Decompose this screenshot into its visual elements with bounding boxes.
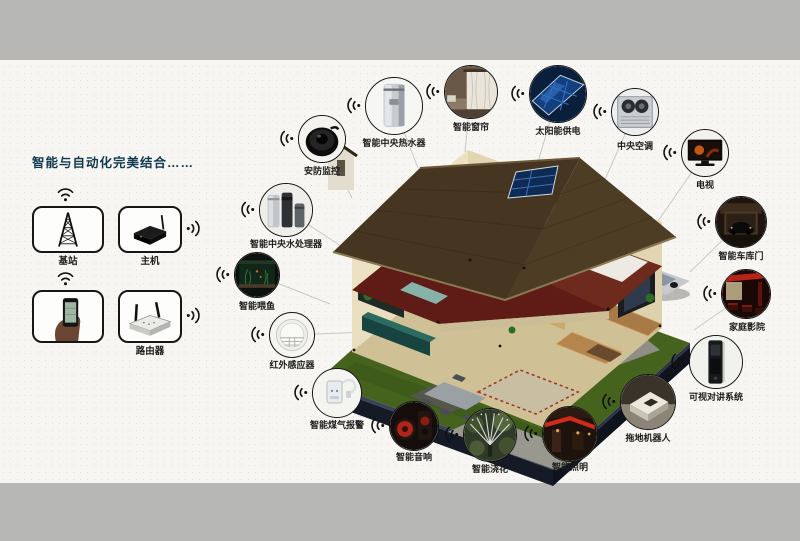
wifi-signal-icon: [703, 284, 718, 303]
device-label: 安防监控: [252, 166, 392, 176]
wifi-signal-icon: [294, 383, 309, 402]
device-label: 智能煤气报警: [267, 420, 407, 430]
page-title: 智能与自动化完美结合……: [32, 152, 194, 171]
home-theater-icon: [721, 269, 771, 319]
wifi-signal-icon: [56, 272, 75, 287]
wifi-signal-icon: [251, 325, 266, 344]
wifi-signal-icon: [663, 143, 678, 162]
intercom-icon: [689, 335, 743, 389]
device-label: 红外感应器: [222, 360, 362, 370]
device-label: 智能音响: [344, 452, 484, 462]
smart-home-infographic: 智能与自动化完美结合…… 基站 主机: [0, 0, 800, 541]
smart-lighting-icon: [542, 406, 598, 462]
device-label: 智能浇花: [420, 464, 560, 474]
wifi-signal-icon: [511, 84, 526, 103]
wifi-signal-icon: [524, 424, 539, 443]
wifi-signal-icon: [280, 129, 295, 148]
device-label: 智能喂鱼: [187, 301, 327, 311]
device-label: 智能中央热水器: [324, 138, 464, 148]
wifi-signal-icon: [426, 82, 441, 101]
device-label: 家庭影院: [677, 322, 800, 332]
wifi-signal-icon: [56, 188, 75, 203]
infrared-sensor-icon: [269, 312, 315, 358]
host-device-icon: [118, 206, 182, 253]
wifi-signal-icon: [602, 392, 617, 411]
device-label: 智能中央水处理器: [216, 239, 356, 249]
device-label: 拖地机器人: [578, 433, 718, 443]
curtains-icon: [444, 65, 498, 119]
device-label: 智能车库门: [671, 251, 800, 261]
gas-alarm-icon: [312, 368, 362, 418]
device-label: 太阳能供电: [488, 126, 628, 136]
wifi-signal-icon: [241, 200, 256, 219]
mopping-robot-icon: [620, 374, 676, 430]
aquarium-icon: [234, 252, 280, 298]
hub-label: 主机: [80, 257, 220, 267]
wifi-signal-icon: [216, 265, 231, 284]
water-processor-icon: [259, 183, 313, 237]
wifi-signal-icon: [671, 352, 686, 371]
air-conditioner-icon: [611, 88, 659, 136]
smartphone-in-hand-icon: [32, 290, 104, 343]
router-icon: [118, 290, 182, 343]
device-label: 电视: [635, 180, 775, 190]
garage-door-icon: [715, 196, 767, 248]
wifi-signal-icon: [347, 96, 362, 115]
hub-label: 路由器: [80, 347, 220, 357]
wifi-signal-icon: [593, 102, 608, 121]
wifi-signal-icon: [185, 219, 200, 238]
wifi-signal-icon: [445, 425, 460, 444]
radio-tower-icon: [32, 206, 104, 253]
wifi-signal-icon: [697, 212, 712, 231]
tv-icon: [681, 129, 729, 177]
solar-panel-icon: [529, 65, 587, 123]
